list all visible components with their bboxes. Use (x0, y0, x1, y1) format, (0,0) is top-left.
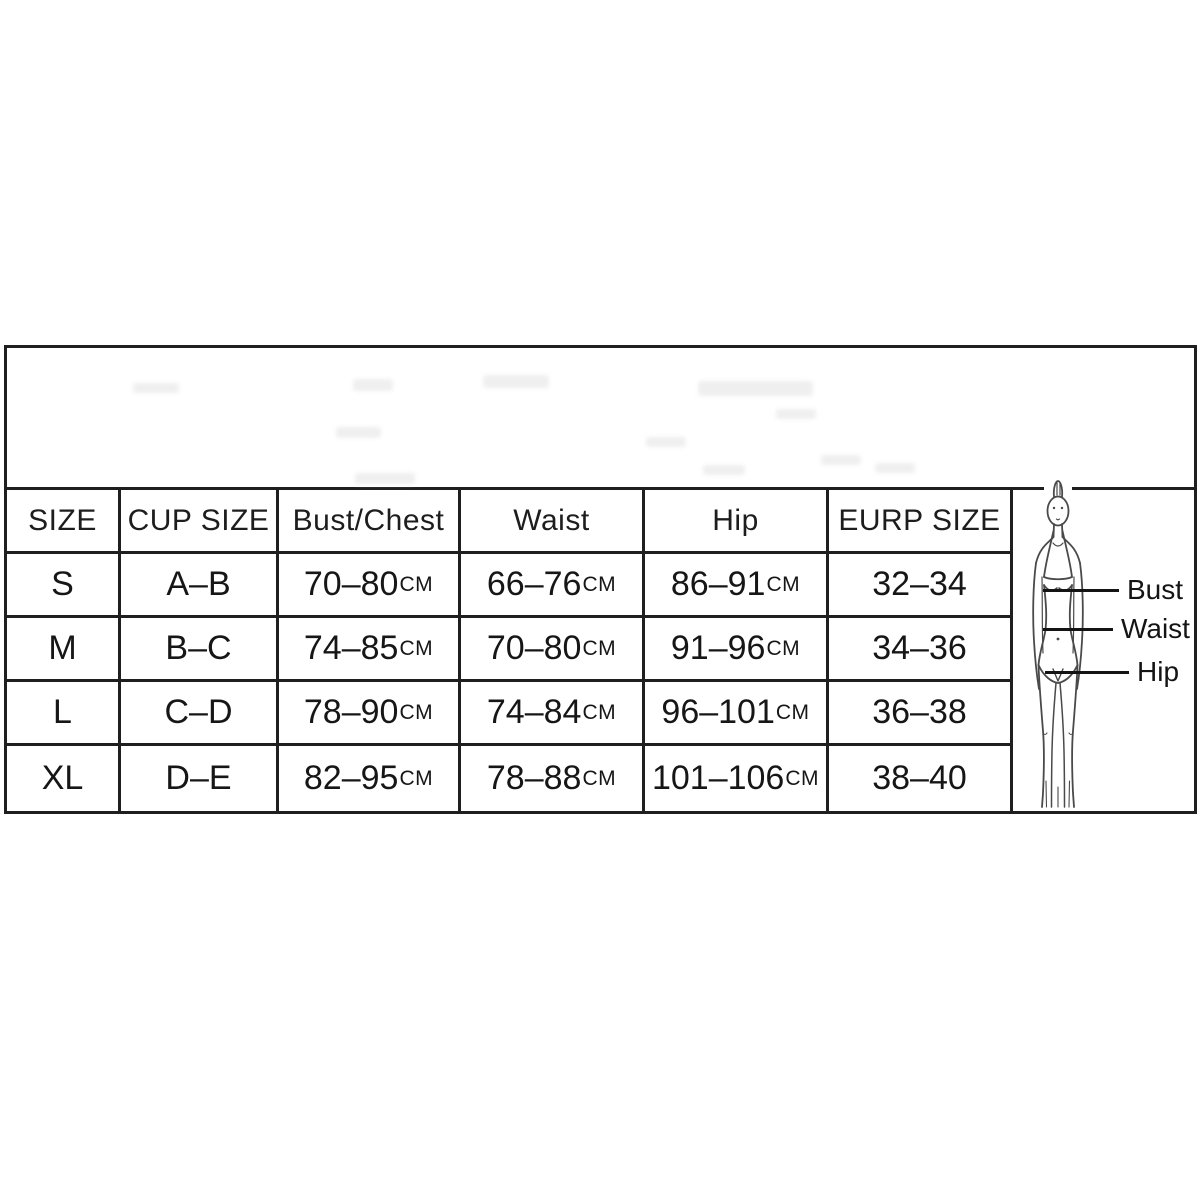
header-eurp-size: EURP SIZE (829, 490, 1013, 554)
unit-cm: CM (785, 767, 819, 791)
cell-s-size: S (7, 554, 121, 618)
unit-cm: CM (399, 767, 433, 791)
cell-s-hip: 86–91CM (645, 554, 829, 618)
unit-cm: CM (582, 637, 616, 661)
ghost-text-artifact (133, 383, 179, 393)
unit-cm: CM (399, 637, 433, 661)
cell-s-eu: 32–34 (829, 554, 1013, 618)
header-cup-size: CUP SIZE (121, 490, 279, 554)
header-cup-size-label: CUP SIZE (128, 504, 270, 538)
unit-cm: CM (582, 701, 616, 725)
cell-xl-eu: 38–40 (829, 746, 1013, 811)
header-size-label: SIZE (28, 504, 97, 538)
cell-l-hip: 96–101CM (645, 682, 829, 746)
size-chart-page: { "table": { "unit": "CM", "headers": ["… (0, 0, 1200, 1200)
header-waist: Waist (461, 490, 645, 554)
header-waist-label: Waist (513, 504, 589, 538)
size-chart-panel: SIZE CUP SIZE Bust/Chest Waist Hip EURP … (4, 345, 1197, 814)
cell-l-bust: 78–90CM (279, 682, 461, 746)
ghost-text-artifact (646, 437, 686, 447)
cell-s-cup: A–B (121, 554, 279, 618)
ghost-text-artifact (336, 427, 381, 438)
ghost-text-artifact (355, 473, 415, 484)
waist-annotation: Waist (1043, 613, 1190, 645)
unit-cm: CM (399, 701, 433, 725)
cell-l-cup: C–D (121, 682, 279, 746)
body-measurement-diagram: Bust Waist Hip (1013, 490, 1194, 811)
ghost-text-artifact (875, 463, 915, 473)
cell-l-size: L (7, 682, 121, 746)
cell-xl-hip: 101–106CM (645, 746, 829, 811)
unit-cm: CM (766, 573, 800, 597)
cell-m-cup: B–C (121, 618, 279, 682)
bust-leader-line (1043, 589, 1119, 592)
cell-m-bust: 74–85CM (279, 618, 461, 682)
unit-cm: CM (582, 573, 616, 597)
ghost-text-artifact (703, 465, 745, 475)
cell-m-eu: 34–36 (829, 618, 1013, 682)
hip-annotation: Hip (1045, 656, 1179, 688)
bust-label: Bust (1127, 574, 1183, 606)
header-bust-chest-label: Bust/Chest (293, 504, 445, 538)
cell-l-waist: 74–84CM (461, 682, 645, 746)
woman-figure-sketch (1013, 481, 1194, 815)
header-eurp-size-label: EURP SIZE (838, 504, 1000, 538)
cell-s-bust: 70–80CM (279, 554, 461, 618)
ghost-text-artifact (821, 455, 861, 465)
cell-s-waist: 66–76CM (461, 554, 645, 618)
cell-xl-cup: D–E (121, 746, 279, 811)
header-bust-chest: Bust/Chest (279, 490, 461, 554)
hip-label: Hip (1137, 656, 1179, 688)
cell-m-waist: 70–80CM (461, 618, 645, 682)
header-size: SIZE (7, 490, 121, 554)
waist-leader-line (1043, 628, 1113, 631)
cell-xl-waist: 78–88CM (461, 746, 645, 811)
ghost-text-artifact (776, 409, 816, 419)
bust-annotation: Bust (1043, 574, 1183, 606)
waist-label: Waist (1121, 613, 1190, 645)
cell-l-eu: 36–38 (829, 682, 1013, 746)
cell-m-hip: 91–96CM (645, 618, 829, 682)
header-hip-label: Hip (712, 504, 759, 538)
cell-xl-size: XL (7, 746, 121, 811)
cell-m-size: M (7, 618, 121, 682)
unit-cm: CM (776, 701, 810, 725)
ghost-text-artifact (483, 375, 549, 388)
unit-cm: CM (766, 637, 800, 661)
ghost-text-artifact (353, 379, 393, 391)
size-table-grid: SIZE CUP SIZE Bust/Chest Waist Hip EURP … (7, 490, 1013, 811)
unit-cm: CM (582, 767, 616, 791)
ghost-text-artifact (698, 381, 813, 396)
size-table: SIZE CUP SIZE Bust/Chest Waist Hip EURP … (7, 490, 1194, 811)
cell-xl-bust: 82–95CM (279, 746, 461, 811)
header-hip: Hip (645, 490, 829, 554)
unit-cm: CM (399, 573, 433, 597)
faded-title-box (7, 348, 1194, 490)
hip-leader-line (1045, 671, 1129, 674)
